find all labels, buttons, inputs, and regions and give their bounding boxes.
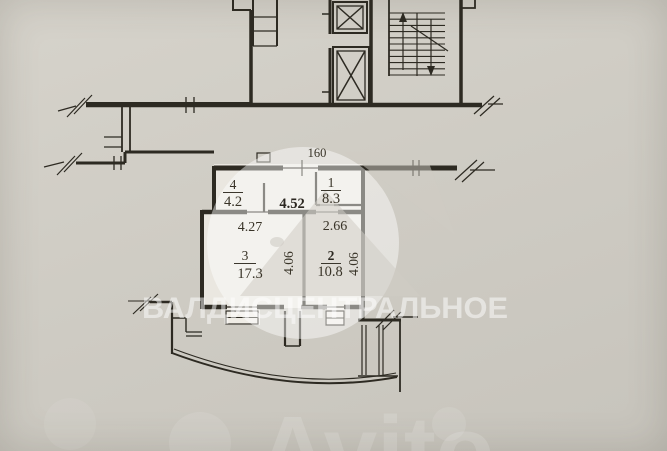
elevator-small-icon: [333, 2, 367, 33]
room-2-width-label: 2.66: [323, 219, 348, 234]
room-2-area-label: 10.8: [317, 264, 342, 280]
floorplan-photo: 160 4 4.2 4.52 1 8.3 4.27 2.66 3 17.3 2 …: [0, 0, 667, 451]
hall-area-label: 4.52: [279, 196, 304, 212]
agency-watermark: ВАЛДИСЦЕНТРАЛЬНОЕ: [142, 292, 508, 325]
room-4-number-label: 4: [230, 177, 237, 192]
balcony-curve: [172, 353, 397, 383]
room-3-depth-label: 4.06: [281, 251, 296, 275]
entrance-dimension-label: 160: [308, 146, 327, 160]
staircase-icon: [389, 0, 475, 104]
room-1-number-label: 1: [328, 175, 335, 190]
room-4-area-label: 4.2: [224, 194, 242, 210]
room-1-area-label: 8.3: [322, 191, 340, 207]
elevator-lobby-wall: [322, 0, 330, 106]
room-3-width-label: 4.27: [238, 220, 263, 235]
neighbor-unit-walls: [86, 0, 251, 104]
room-3-area-label: 17.3: [237, 266, 262, 282]
room-2-depth-label: 4.06: [346, 252, 361, 276]
brand-watermark: Avito: [44, 397, 494, 451]
brand-watermark-text: Avito: [258, 397, 494, 451]
room-2-number-label: 2: [328, 248, 335, 263]
shaft-column: [253, 0, 277, 46]
room-3-number-label: 3: [242, 248, 249, 263]
floor-plan: 160 4 4.2 4.52 1 8.3 4.27 2.66 3 17.3 2 …: [0, 0, 667, 451]
